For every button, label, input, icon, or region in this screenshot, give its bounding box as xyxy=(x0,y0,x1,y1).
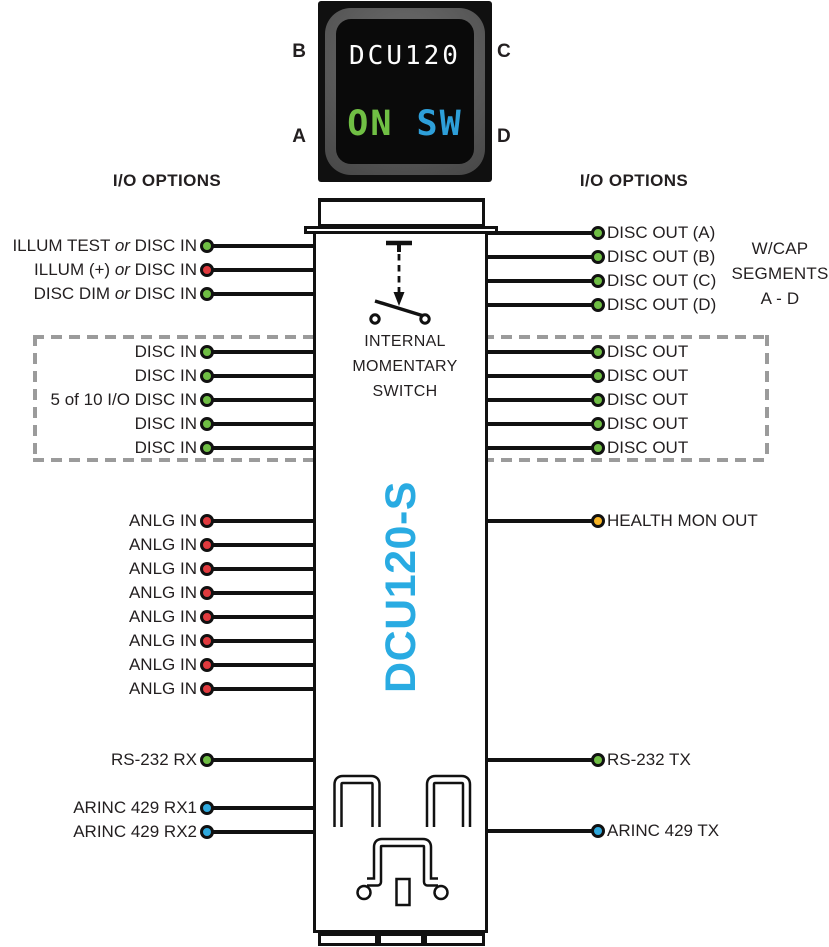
left-pin-row-arinc-2: ARINC 429 RX2 xyxy=(0,820,313,844)
segment-label-a: A xyxy=(280,126,306,148)
right-pin-row-cap-2: DISC OUT (B) xyxy=(488,245,829,269)
left-pin-row-anlg-4: ANLG IN xyxy=(0,581,313,605)
wire-line xyxy=(207,422,313,426)
left-pin-row-anlg-7: ANLG IN xyxy=(0,653,313,677)
switch-caption-line-3: SWITCH xyxy=(325,379,485,404)
pin-label: RS-232 TX xyxy=(607,748,691,772)
wire-line xyxy=(207,639,313,643)
panel-flange xyxy=(304,226,498,234)
left-pin-row-anlg-1: ANLG IN xyxy=(0,509,313,533)
dcu120s-io-diagram: DCU120 ON SW B C A D I/O OPTIONS I/O OPT… xyxy=(0,0,829,947)
left-pin-row-illum-3: DISC DIM or DISC IN xyxy=(0,282,313,306)
pin-label: DISC OUT xyxy=(607,364,688,388)
wire-line xyxy=(207,244,313,248)
pin-label: ANLG IN xyxy=(129,509,197,533)
pin-dot-green xyxy=(591,298,605,312)
momentary-switch-icon xyxy=(358,236,442,328)
wire-line xyxy=(207,543,313,547)
wire-line xyxy=(207,350,313,354)
pin-dot-blue xyxy=(200,801,214,815)
pin-dot-green xyxy=(200,369,214,383)
pushbutton-bezel: DCU120 ON SW xyxy=(325,8,485,175)
wire-line xyxy=(207,567,313,571)
device-model-vertical-label: DCU120-S xyxy=(377,472,423,702)
wire-line xyxy=(207,830,313,834)
pin-label: DISC DIM or DISC IN xyxy=(34,282,197,306)
display-gap xyxy=(393,104,416,144)
bracket-foot-right xyxy=(435,886,448,899)
wire-line xyxy=(488,255,598,259)
pin-label: DISC OUT (B) xyxy=(607,245,715,269)
pin-label: DISC IN xyxy=(135,340,197,364)
pin-label: DISC OUT (C) xyxy=(607,269,716,293)
right-pin-row-cap-3: DISC OUT (C) xyxy=(488,269,829,293)
pin-dot-red xyxy=(200,263,214,277)
pin-label: ARINC 429 TX xyxy=(607,819,719,843)
pin-dot-green xyxy=(591,226,605,240)
pin-label: DISC OUT xyxy=(607,436,688,460)
pin-label: ANLG IN xyxy=(129,629,197,653)
left-pin-row-anlg-3: ANLG IN xyxy=(0,557,313,581)
wire-line xyxy=(207,519,313,523)
wire-line xyxy=(488,829,598,833)
switch-caption: INTERNAL MOMENTARY SWITCH xyxy=(325,329,485,404)
wire-line xyxy=(488,519,598,523)
pin-dot-green xyxy=(591,393,605,407)
bottom-tab-right xyxy=(424,933,485,946)
wire-line xyxy=(488,398,598,402)
left-pin-row-anlg-2: ANLG IN xyxy=(0,533,313,557)
right-pin-row-disc-out-2: DISC OUT xyxy=(488,364,829,388)
pin-label: DISC OUT xyxy=(607,412,688,436)
pin-label: ANLG IN xyxy=(129,557,197,581)
wire-line xyxy=(488,279,598,283)
pin-label: DISC OUT (D) xyxy=(607,293,716,317)
left-pin-row-arinc-1: ARINC 429 RX1 xyxy=(0,796,313,820)
right-pin-row-cap-1: DISC OUT (A) xyxy=(488,221,829,245)
pin-dot-green xyxy=(200,239,214,253)
left-pin-row-illum-1: ILLUM TEST or DISC IN xyxy=(0,234,313,258)
io-options-header-left: I/O OPTIONS xyxy=(67,171,267,191)
pin-dot-green xyxy=(200,753,214,767)
pin-label: ILLUM (+) or DISC IN xyxy=(34,258,197,282)
pin-label: DISC OUT (A) xyxy=(607,221,715,245)
pin-label: ANLG IN xyxy=(129,533,197,557)
pin-label: ARINC 429 RX2 xyxy=(73,820,197,844)
connector-staple-right xyxy=(431,780,467,828)
pin-dot-green xyxy=(591,753,605,767)
pin-dot-red xyxy=(200,586,214,600)
switch-caption-line-1: INTERNAL xyxy=(325,329,485,354)
pin-label: DISC IN xyxy=(135,436,197,460)
bracket-slot xyxy=(397,879,410,905)
wire-line xyxy=(207,663,313,667)
pin-dot-blue xyxy=(591,824,605,838)
pin-label: DISC IN xyxy=(135,364,197,388)
wire-line xyxy=(207,446,313,450)
bottom-tab-middle xyxy=(378,933,424,946)
pin-dot-green xyxy=(591,417,605,431)
switch-caption-line-2: MOMENTARY xyxy=(325,354,485,379)
wire-line xyxy=(207,687,313,691)
right-pin-row-disc-out-3: DISC OUT xyxy=(488,388,829,412)
pin-dot-green xyxy=(200,345,214,359)
wire-line xyxy=(488,422,598,426)
pin-label: ANLG IN xyxy=(129,677,197,701)
pin-dot-green xyxy=(200,417,214,431)
pin-dot-red xyxy=(200,538,214,552)
wire-line xyxy=(207,806,313,810)
pushbutton-screen: DCU120 ON SW xyxy=(336,19,474,164)
pin-label: ANLG IN xyxy=(129,581,197,605)
pin-dot-red xyxy=(200,658,214,672)
pin-label: RS-232 RX xyxy=(111,748,197,772)
pin-dot-red xyxy=(200,682,214,696)
pin-dot-yellow xyxy=(591,514,605,528)
left-pin-row-illum-2: ILLUM (+) or DISC IN xyxy=(0,258,313,282)
arrow-down-icon xyxy=(394,292,405,306)
wire-line xyxy=(488,374,598,378)
switch-button-stem xyxy=(318,198,485,227)
left-pin-row-disc-in-2: DISC IN xyxy=(0,364,313,388)
pin-dot-red xyxy=(200,514,214,528)
pin-label: ARINC 429 RX1 xyxy=(73,796,197,820)
display-model-text: DCU120 xyxy=(336,41,474,71)
pushbutton-photo: DCU120 ON SW xyxy=(318,1,492,182)
wire-line xyxy=(488,303,598,307)
right-pin-row-health-1: HEALTH MON OUT xyxy=(488,509,829,533)
wire-line xyxy=(488,350,598,354)
left-pin-row-disc-in-1: DISC IN xyxy=(0,340,313,364)
left-pin-row-disc-in-3: 5 of 10 I/O DISC IN xyxy=(0,388,313,412)
pin-dot-green xyxy=(200,393,214,407)
right-pin-row-disc-out-4: DISC OUT xyxy=(488,412,829,436)
wire-line xyxy=(207,268,313,272)
right-pin-row-serial-1: RS-232 TX xyxy=(488,748,829,772)
segment-label-c: C xyxy=(497,41,523,63)
pin-dot-red xyxy=(200,562,214,576)
io-options-header-right: I/O OPTIONS xyxy=(534,171,734,191)
right-pin-row-arinc-1: ARINC 429 TX xyxy=(488,819,829,843)
pin-label: 5 of 10 I/O DISC IN xyxy=(51,388,197,412)
wire-line xyxy=(488,446,598,450)
right-pin-row-cap-4: DISC OUT (D) xyxy=(488,293,829,317)
bracket-foot-left xyxy=(358,886,371,899)
pin-dot-green xyxy=(591,345,605,359)
pin-dot-green xyxy=(200,287,214,301)
pin-dot-green xyxy=(591,250,605,264)
pin-label: ILLUM TEST or DISC IN xyxy=(12,234,197,258)
wire-line xyxy=(207,758,313,762)
display-sw-text: SW xyxy=(417,104,463,144)
connector-outlines-icon xyxy=(313,758,488,933)
connector-staple-left xyxy=(338,780,376,828)
pin-dot-red xyxy=(200,610,214,624)
pin-dot-green xyxy=(591,369,605,383)
display-on-text: ON xyxy=(347,104,393,144)
wire-line xyxy=(488,758,598,762)
pin-dot-green xyxy=(591,441,605,455)
wire-line xyxy=(488,231,598,235)
right-pin-row-disc-out-1: DISC OUT xyxy=(488,340,829,364)
display-status-row: ON SW xyxy=(336,104,474,144)
left-pin-row-disc-in-4: DISC IN xyxy=(0,412,313,436)
pin-label: DISC IN xyxy=(135,412,197,436)
pin-label: ANLG IN xyxy=(129,605,197,629)
left-pin-row-anlg-6: ANLG IN xyxy=(0,629,313,653)
wire-line xyxy=(207,398,313,402)
bottom-tab-left xyxy=(318,933,378,946)
pin-label: ANLG IN xyxy=(129,653,197,677)
segment-label-b: B xyxy=(280,41,306,63)
pin-dot-green xyxy=(200,441,214,455)
pin-dot-green xyxy=(591,274,605,288)
pin-label: DISC OUT xyxy=(607,340,688,364)
wire-line xyxy=(207,591,313,595)
pin-dot-red xyxy=(200,634,214,648)
right-pin-row-disc-out-5: DISC OUT xyxy=(488,436,829,460)
left-pin-row-serial-1: RS-232 RX xyxy=(0,748,313,772)
wire-line xyxy=(207,615,313,619)
segment-label-d: D xyxy=(497,126,523,148)
pin-label: HEALTH MON OUT xyxy=(607,509,758,533)
left-pin-row-anlg-5: ANLG IN xyxy=(0,605,313,629)
wire-line xyxy=(207,292,313,296)
left-pin-row-anlg-8: ANLG IN xyxy=(0,677,313,701)
wire-line xyxy=(207,374,313,378)
pin-dot-blue xyxy=(200,825,214,839)
pin-label: DISC OUT xyxy=(607,388,688,412)
left-pin-row-disc-in-5: DISC IN xyxy=(0,436,313,460)
